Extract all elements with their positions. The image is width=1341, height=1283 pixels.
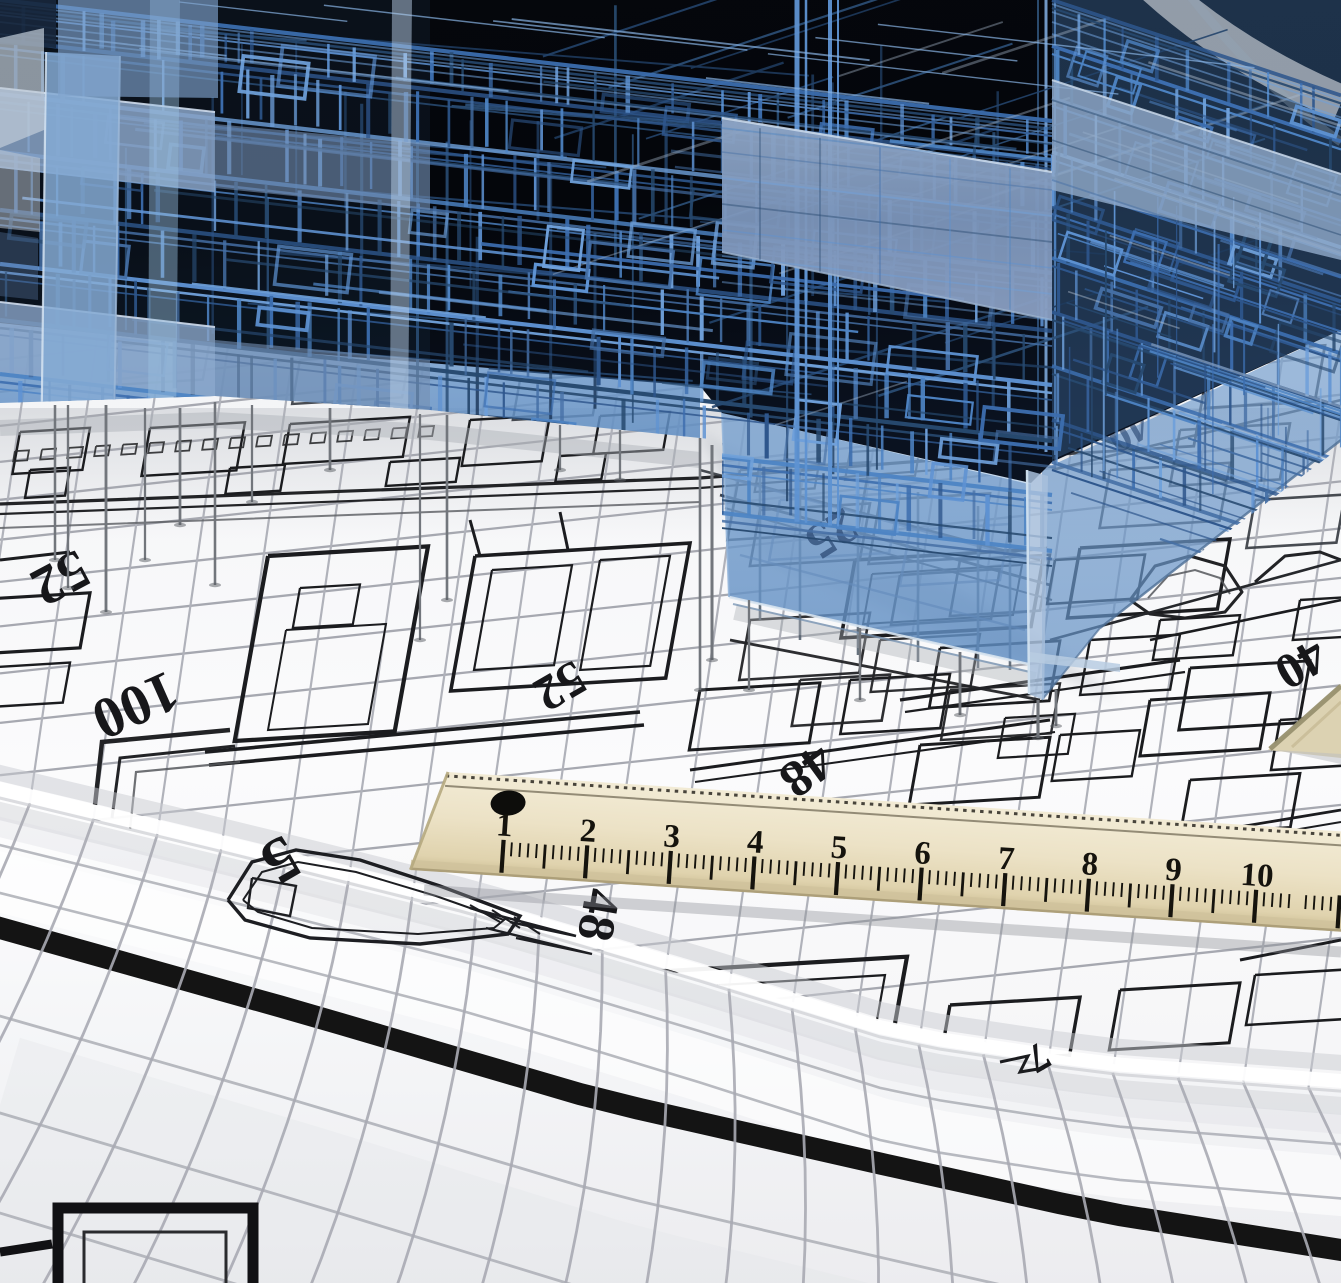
svg-text:4: 4 (746, 824, 765, 861)
svg-text:7: 7 (997, 841, 1016, 878)
svg-text:6: 6 (913, 835, 932, 872)
svg-text:9: 9 (1164, 852, 1183, 889)
svg-text:48: 48 (566, 884, 631, 945)
svg-text:10: 10 (1239, 857, 1274, 895)
svg-text:5: 5 (830, 830, 849, 867)
svg-text:1: 1 (495, 807, 514, 844)
svg-text:2: 2 (579, 813, 598, 850)
svg-text:3: 3 (662, 818, 681, 855)
svg-text:8: 8 (1080, 846, 1099, 883)
